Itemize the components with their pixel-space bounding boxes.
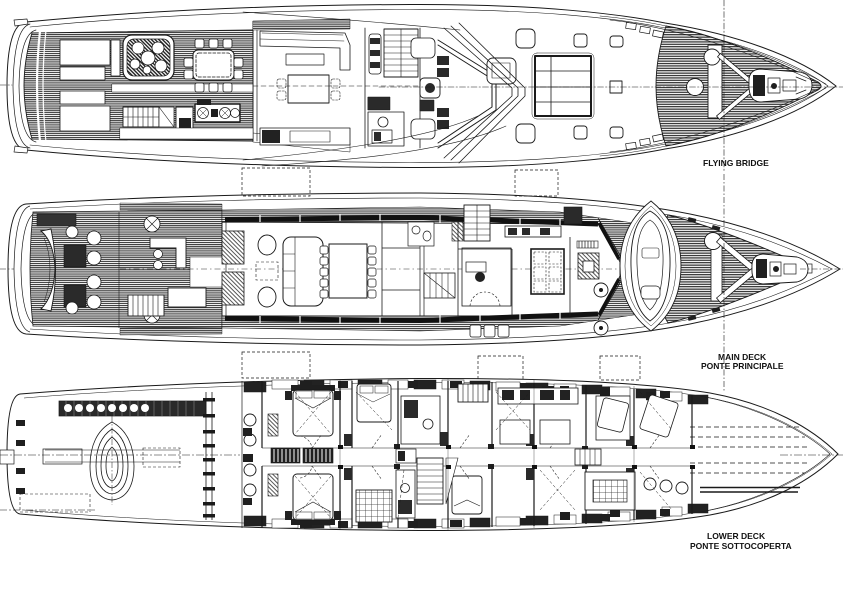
svg-text:FLYING BRIDGE: FLYING BRIDGE [703,158,769,168]
svg-text:PONTE PRINCIPALE: PONTE PRINCIPALE [701,361,784,371]
svg-text:PONTE SOTTOCOPERTA: PONTE SOTTOCOPERTA [690,541,792,551]
svg-text:LOWER DECK: LOWER DECK [707,531,766,541]
